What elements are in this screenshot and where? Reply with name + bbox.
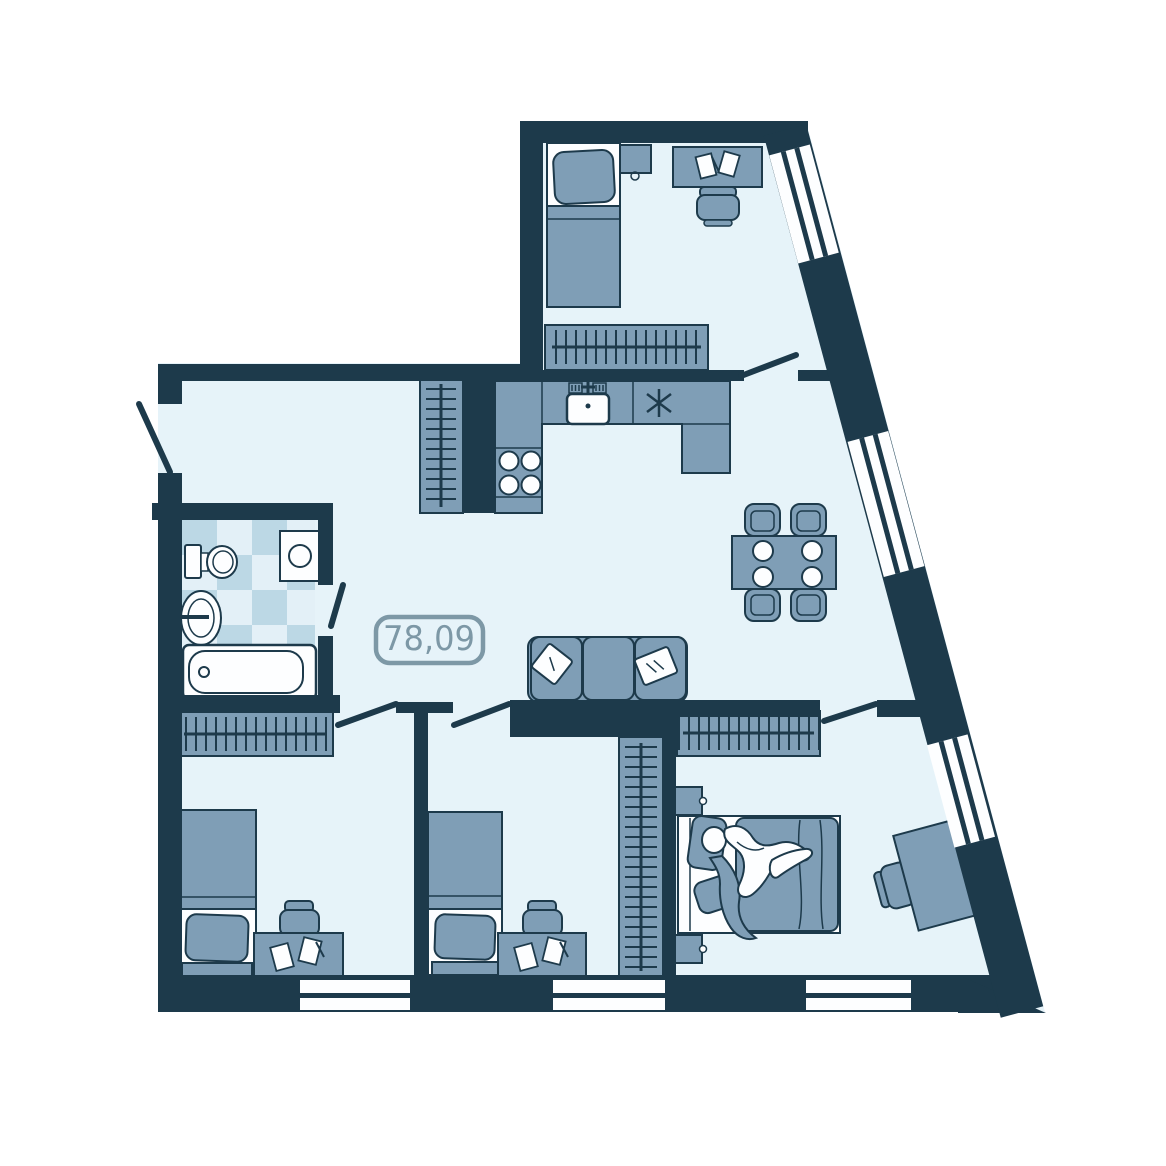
wall-bedroom-top [520,121,808,143]
single-bed [547,143,620,307]
desk [673,147,762,187]
wardrobe [677,711,820,756]
wardrobe [545,325,708,370]
wall-bedroom-bottom-b [798,370,830,381]
wardrobe [178,712,333,756]
plate [802,567,822,587]
kitchen-sink-symbol [567,382,609,424]
bathroom-sink-symbol [181,591,221,645]
bed-pillow [185,914,249,962]
area-label: 78,09 [376,617,483,663]
floor-plan: 78,09 [0,0,1166,1166]
wall-mid-vertical [663,700,676,1012]
plate [802,541,822,561]
wall-left-stub [158,364,182,404]
wall-bath-bottom [158,695,340,713]
dining-chair [745,589,780,621]
desk-chair [697,187,739,226]
window [553,980,665,1010]
desk [498,933,586,976]
bed-pillow [553,149,616,204]
wall-bedroom-bottom-a [520,370,744,381]
wall-bath-right-upper [318,503,333,585]
plate [753,567,773,587]
desk-chair [523,901,562,936]
single-bed [428,812,502,975]
toilet-symbol [185,545,237,578]
bathroom [181,520,320,699]
wall-kitchen-divider [463,376,495,513]
wall-t-vertical [414,702,428,978]
bed-blanket [178,810,256,909]
wall-left-main [158,473,182,1012]
plate [753,541,773,561]
wall-bath-top [152,503,333,520]
window [300,980,410,1010]
area-label-text: 78,09 [383,619,475,659]
single-bed [178,810,256,976]
wall-living-divider-thick [510,717,663,737]
hall-wardrobe [420,378,463,513]
dining-chair [791,589,826,621]
washing-machine-symbol [280,531,320,581]
desk [254,933,343,976]
dining-chair [745,504,780,536]
wall-master-top [877,700,942,717]
bed-blanket [428,812,502,909]
bed-blanket [547,206,620,307]
sofa [528,637,687,702]
double-bed [678,815,840,939]
wall-bedroom-top-left [520,121,543,381]
tall-wardrobe [619,737,663,977]
nightstand [674,787,707,815]
bathtub-symbol [183,645,316,699]
desk-chair [280,901,319,936]
bed-pillow [434,914,495,960]
floor-plan-drawing: 78,09 [0,0,1166,1166]
nightstand [674,935,707,963]
dining-chair [791,504,826,536]
window [806,980,911,1010]
